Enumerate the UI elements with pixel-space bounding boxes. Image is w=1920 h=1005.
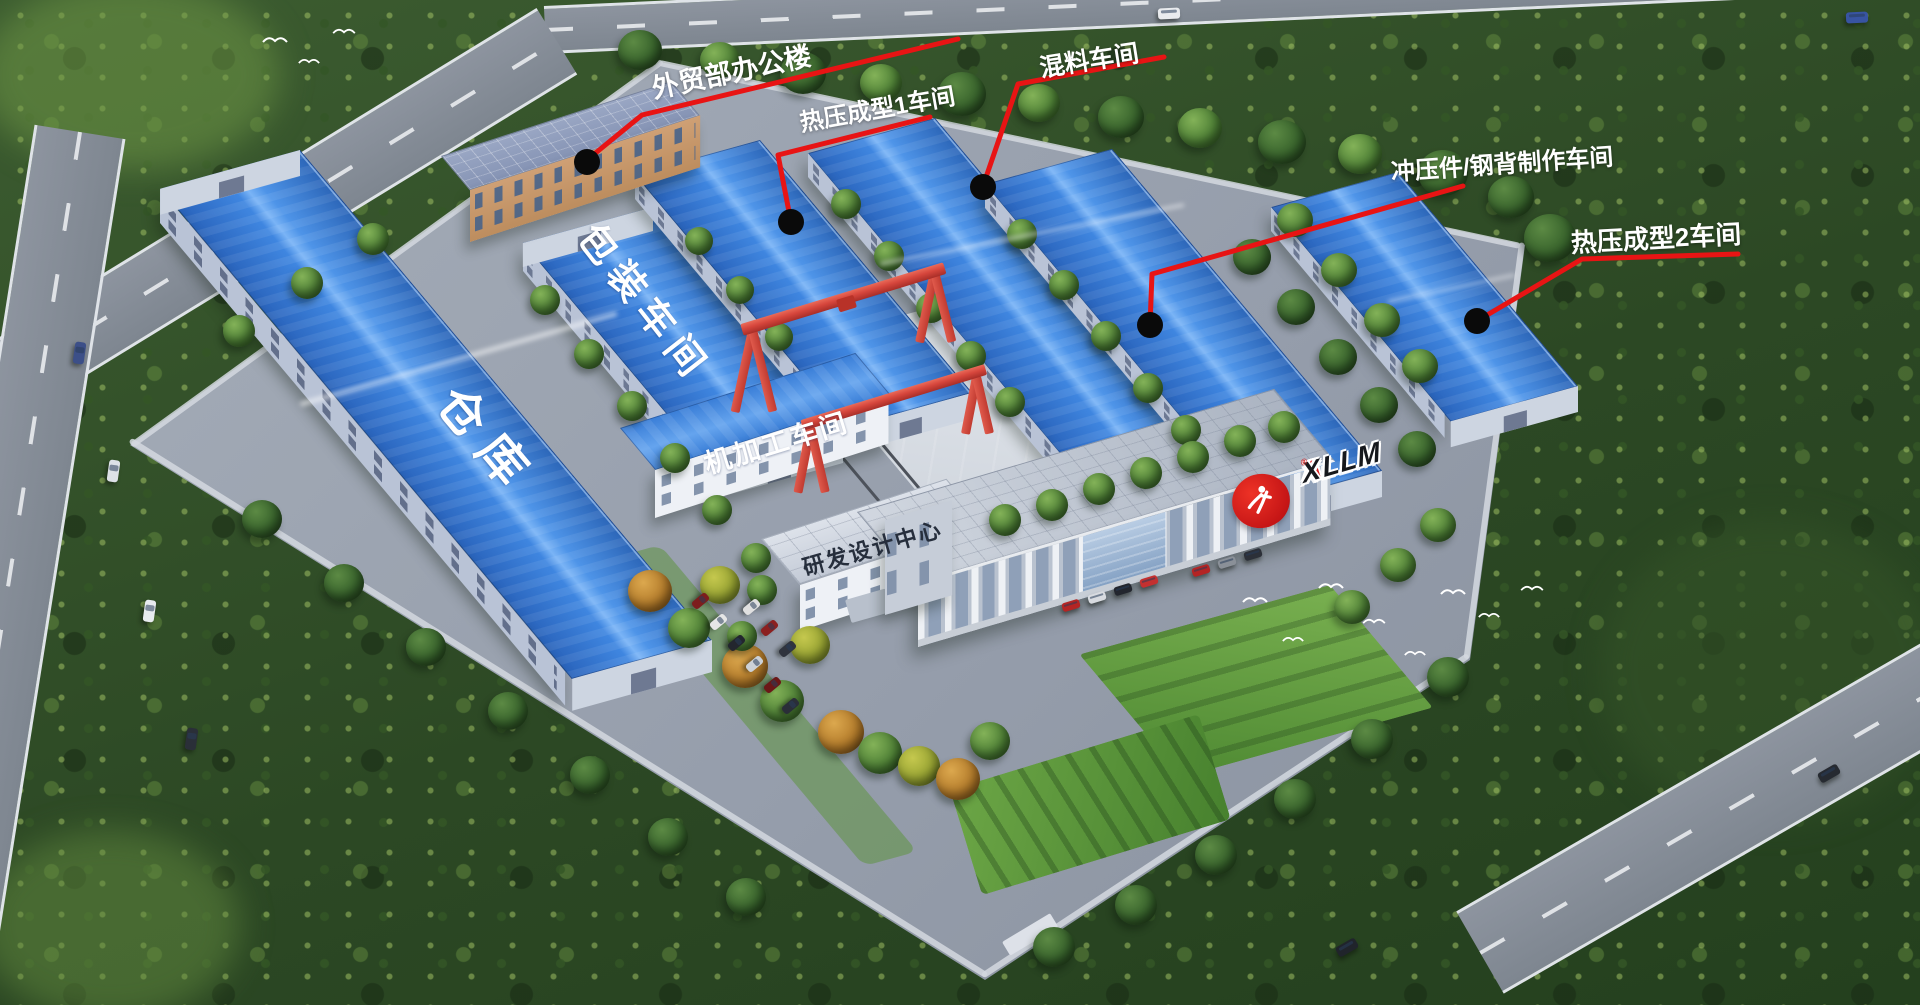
car	[1158, 7, 1181, 19]
car	[1335, 937, 1360, 958]
car	[742, 598, 762, 616]
car	[107, 459, 121, 482]
car	[745, 655, 765, 673]
car	[760, 619, 780, 637]
car	[1817, 763, 1842, 784]
factory-aerial-render: ALLMAX® 仓库 包装车间 机加工车间 研发设计中心 外贸部办公楼 热压成型…	[0, 0, 1920, 1005]
car	[1087, 591, 1107, 605]
car	[1139, 575, 1159, 589]
registered-mark: ®	[1300, 456, 1309, 468]
car	[781, 697, 801, 715]
car	[691, 592, 711, 610]
car	[1217, 556, 1237, 570]
runner-icon	[1236, 476, 1285, 525]
car	[185, 727, 199, 750]
car	[1191, 564, 1211, 578]
car	[1846, 11, 1869, 23]
car	[1243, 548, 1263, 562]
car	[1061, 599, 1081, 613]
car	[73, 341, 87, 364]
car	[1113, 583, 1133, 597]
cars-layer	[0, 0, 1920, 1005]
car	[143, 599, 157, 622]
car	[778, 640, 798, 658]
car	[709, 613, 729, 631]
car	[727, 634, 747, 652]
car	[763, 676, 783, 694]
